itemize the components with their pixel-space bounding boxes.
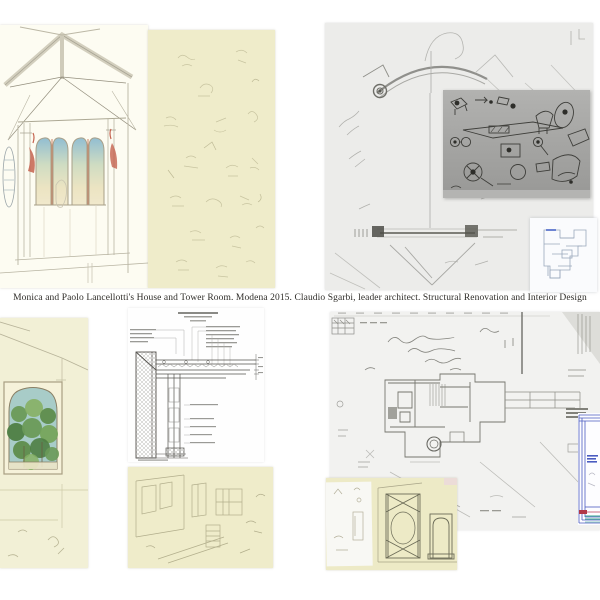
arched-garden-window-drawing [0, 318, 88, 568]
faint-scribbles-drawing [148, 30, 275, 288]
interior-perspective-pencil-sketch [128, 467, 273, 568]
faint-pencil-study-sheet [148, 30, 275, 288]
roof-truss-and-arched-windows-drawing [0, 25, 148, 288]
portfolio-page: Monica and Paolo Lancellotti's House and… [0, 0, 600, 600]
wall-floor-junction-detail-drawing [128, 308, 264, 462]
small-floor-plan-drawing [530, 218, 597, 292]
construction-detail-cad-drawing [128, 308, 264, 462]
window-with-garden-view-drawing [0, 318, 88, 568]
caption-text: Monica and Paolo Lancellotti's House and… [0, 293, 600, 303]
tower-room-interior-perspective-drawing [0, 25, 148, 288]
small-floor-plan-inset [530, 218, 597, 292]
furniture-sketches-photo-inset [443, 90, 590, 198]
room-perspective-drawing [128, 467, 273, 568]
cad-sheet-edge-with-title-block [578, 413, 600, 525]
furniture-sketches-drawing [443, 90, 590, 198]
wardrobe-elevation-drawings [326, 478, 457, 570]
furniture-elevation-sketches-sheet [326, 478, 457, 570]
cad-border-drawing [578, 413, 600, 525]
